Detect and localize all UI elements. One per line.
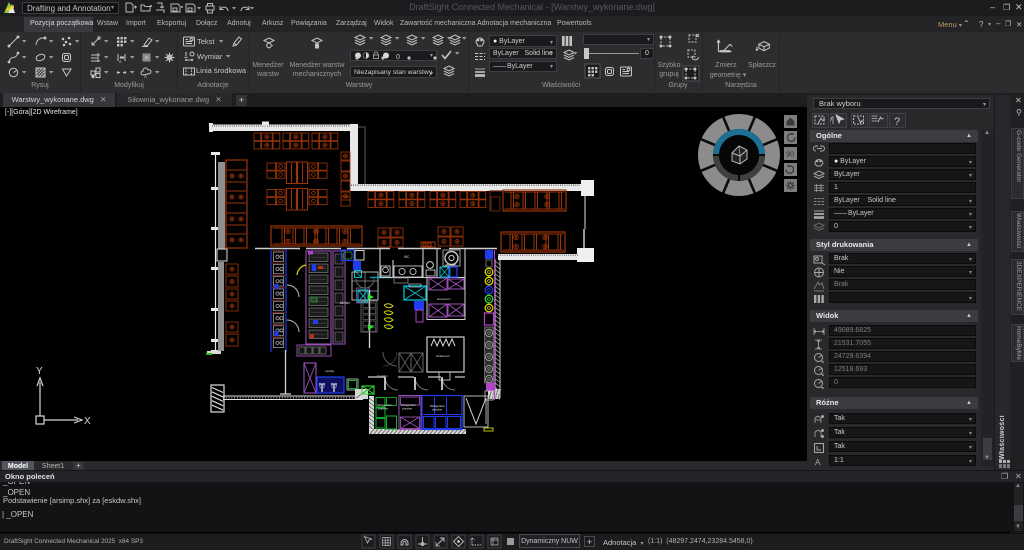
svg-text:moddy: moddy (325, 369, 335, 373)
svg-text:A: A (815, 458, 821, 467)
svg-text:chamber: chamber (432, 408, 442, 412)
svg-text:?: ? (894, 116, 900, 128)
svg-text:garbage: garbage (445, 263, 456, 267)
svg-text:Y: Y (36, 366, 43, 377)
svg-text:1: 1 (822, 359, 825, 364)
svg-text:2: 2 (822, 372, 825, 377)
svg-text:Refrigeration: Refrigeration (430, 404, 445, 408)
svg-text:Refrigeration: Refrigeration (401, 403, 416, 407)
svg-text:A: A (144, 74, 147, 79)
svg-text:A: A (119, 59, 122, 64)
svg-text:90: 90 (786, 152, 794, 159)
svg-text:cloakroom: cloakroom (436, 354, 450, 358)
svg-text:kitchen: kitchen (340, 301, 350, 305)
svg-text:storeroom: storeroom (437, 297, 451, 301)
svg-text:WC: WC (404, 255, 410, 259)
svg-text:chamber: chamber (402, 407, 412, 411)
svg-text:X: X (84, 416, 91, 427)
svg-text:chamber: chamber (378, 407, 388, 411)
svg-text:z: z (822, 385, 824, 390)
svg-text:Refrigeration: Refrigeration (377, 403, 392, 407)
